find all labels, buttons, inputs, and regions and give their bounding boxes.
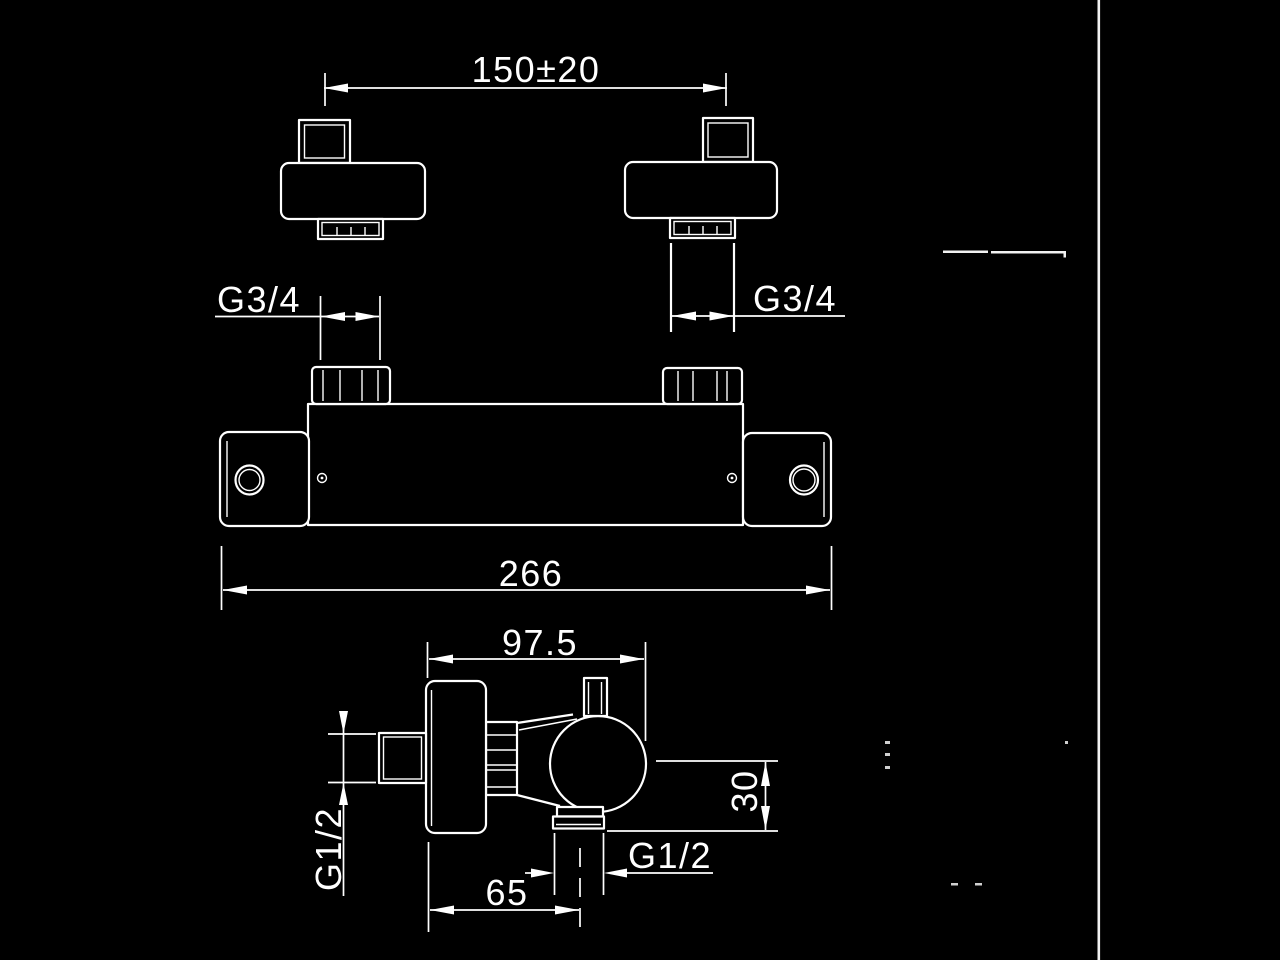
nut-outline [663,368,742,404]
artifact-dash [951,883,958,886]
union-body [281,163,425,219]
union-wall-stub [299,120,350,163]
arrowhead [604,869,627,878]
arrowhead [356,312,380,321]
dim-outlet-thread: G1/2 [525,833,713,895]
artifact-dot [1065,741,1068,744]
dim-thread-right-label: G3/4 [753,278,837,319]
dim-outlet-offset: 65 [429,842,581,932]
locking-collar [486,722,517,795]
mixer-side-view [379,678,646,833]
arrowhead [324,84,348,93]
arrowhead [339,711,348,734]
handle-profile-circle [550,716,646,812]
artifact-dot [885,753,890,756]
hex-nut-left [312,367,390,404]
artifact-horizontal-line [991,251,1066,254]
inlet-nipple [379,733,426,783]
dim-inlet-thread: G1/2 [308,711,376,896]
dim-overall-width-label: 266 [499,553,564,594]
wall-union-left [281,120,425,239]
dim-outlet-thread-label: G1/2 [628,835,712,876]
arrowhead [806,586,830,595]
dim-depth-label: 97.5 [502,622,578,663]
union-wall-stub [703,118,753,162]
union-body [625,162,777,218]
artifact-horizontal-line [943,251,988,254]
hex-nut-right [663,368,742,404]
dim-inlet-thread-label: G1/2 [308,807,349,891]
arrowhead [531,869,554,878]
dim-thread-right: G3/4 [672,278,845,321]
arrowhead [339,783,348,805]
bottom-outlet-lip [557,807,603,817]
temperature-handle [220,432,309,526]
dim-overall-width: 266 [222,546,832,610]
artifact-tick [1064,251,1067,258]
technical-drawing-page: 150±20 G3/4 G3/4 [0,0,1280,960]
body-cone-bottom [517,795,560,806]
arrowhead [223,586,247,595]
top-outlet-stub [584,678,607,716]
scan-artifacts [885,0,1100,960]
arrowhead [620,655,644,664]
bottom-outlet-block [553,817,604,829]
arrowhead [429,655,453,664]
mixer-front-view [220,367,831,526]
screw-left-center [321,477,324,480]
artifact-dot [885,766,890,769]
arrowhead [710,312,734,321]
dim-outlet-drop-label: 30 [724,769,765,812]
flow-handle [743,433,831,526]
dim-wall-spacing: 150±20 [324,49,727,106]
valve-body [308,404,743,525]
arrowhead [430,906,454,915]
arrowhead [555,906,579,915]
dim-thread-left: G3/4 [215,279,380,360]
artifact-vertical-line [1098,0,1101,960]
dim-outlet-offset-label: 65 [485,872,528,913]
dim-thread-left-label: G3/4 [217,279,301,320]
arrowhead [672,312,696,321]
artifact-dash [975,883,982,886]
shower-mixer-drawing: 150±20 G3/4 G3/4 [0,0,1280,960]
wall-escutcheon [426,681,486,833]
artifact-dot [885,741,890,744]
arrowhead [703,84,727,93]
arrowhead [321,312,345,321]
dim-wall-spacing-label: 150±20 [472,49,601,90]
screw-right-center [731,477,734,480]
